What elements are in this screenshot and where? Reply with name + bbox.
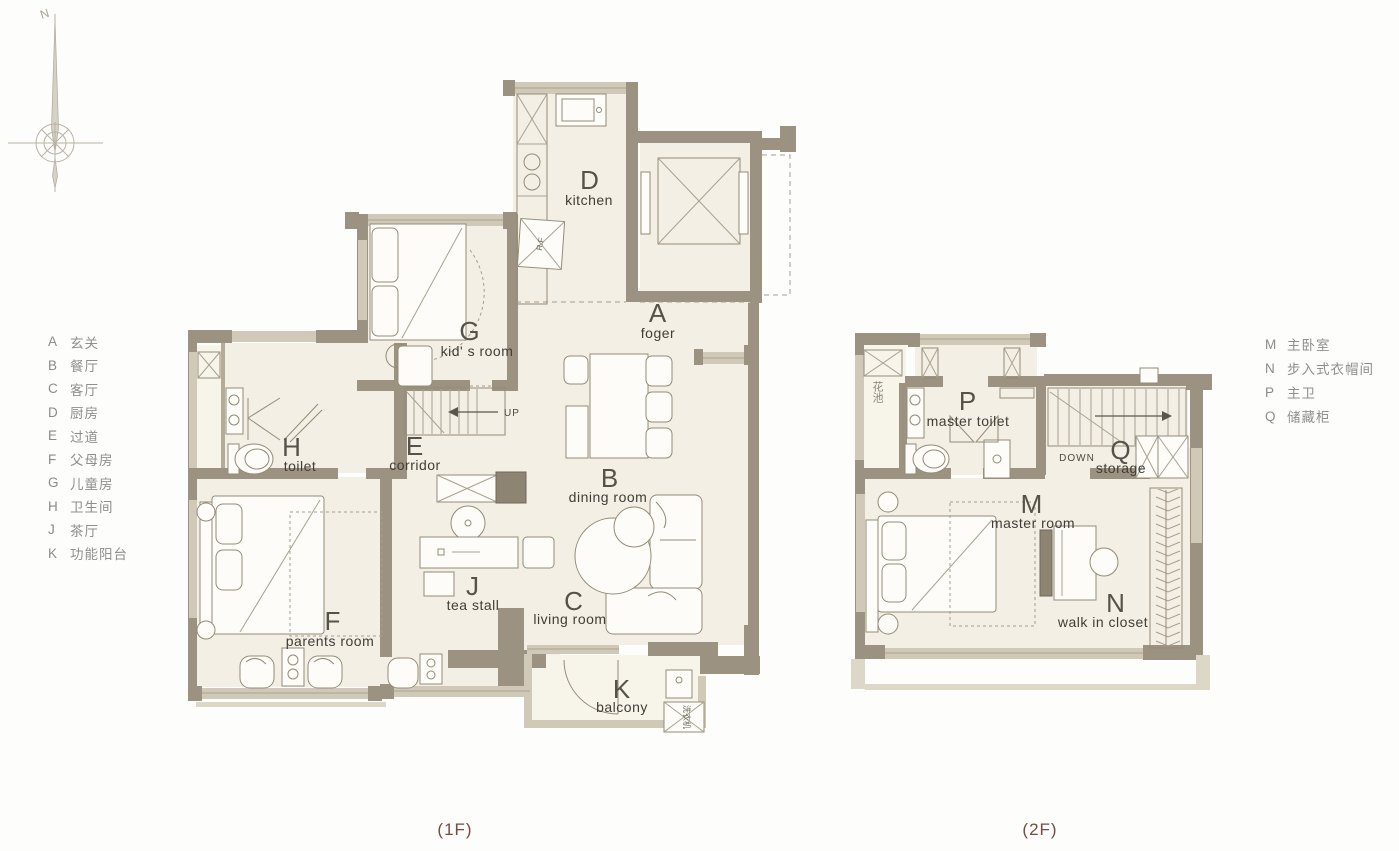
room-name-foyer: foger bbox=[641, 325, 675, 341]
room-name-master: master room bbox=[991, 515, 1075, 531]
floor2-plan: DOWN 花池 bbox=[851, 333, 1212, 690]
floor-plan-page: A玄关 B餐厅 C客厅 D厨房 E过道 F父母房 G儿童房 H卫生间 J茶厅 K… bbox=[0, 0, 1399, 851]
washer-label: 洗衣机 bbox=[682, 705, 692, 729]
room-name-living: living room bbox=[533, 611, 606, 627]
room-code-kids: G bbox=[459, 316, 480, 346]
compass-north-label: N bbox=[38, 6, 51, 22]
stairs-down-label: DOWN bbox=[1059, 453, 1095, 464]
stairs-up-label: UP bbox=[504, 408, 520, 419]
room-name-dining: dining room bbox=[569, 489, 648, 505]
room-name-toilet: toilet bbox=[284, 458, 317, 474]
floor1-plan: UP R.F bbox=[188, 80, 796, 732]
washing-machine: 洗衣机 bbox=[664, 702, 704, 732]
room-code-parents: F bbox=[325, 606, 342, 636]
room-code-master-toilet: P bbox=[959, 386, 977, 416]
room-name-storage: storage bbox=[1096, 460, 1146, 476]
refrigerator: R.F bbox=[517, 219, 564, 270]
room-name-kids: kid' s room bbox=[441, 343, 514, 359]
room-name-balcony: balcony bbox=[596, 699, 648, 715]
room-name-kitchen: kitchen bbox=[565, 192, 613, 208]
room-code-foyer: A bbox=[649, 298, 667, 328]
flower-box-label: 花池 bbox=[871, 381, 884, 403]
closet-hangers bbox=[1150, 488, 1182, 648]
dining-furniture bbox=[564, 354, 672, 458]
room-name-parents: parents room bbox=[286, 633, 374, 649]
room-name-master-toilet: master toilet bbox=[927, 413, 1010, 429]
floor-plan-drawing: N bbox=[0, 0, 1399, 851]
room-name-tea: tea stall bbox=[447, 597, 500, 613]
room-code-kitchen: D bbox=[580, 165, 600, 195]
compass-rose: N bbox=[8, 6, 103, 192]
room-name-closet: walk in closet bbox=[1057, 614, 1148, 630]
room-name-corridor: corridor bbox=[389, 457, 440, 473]
